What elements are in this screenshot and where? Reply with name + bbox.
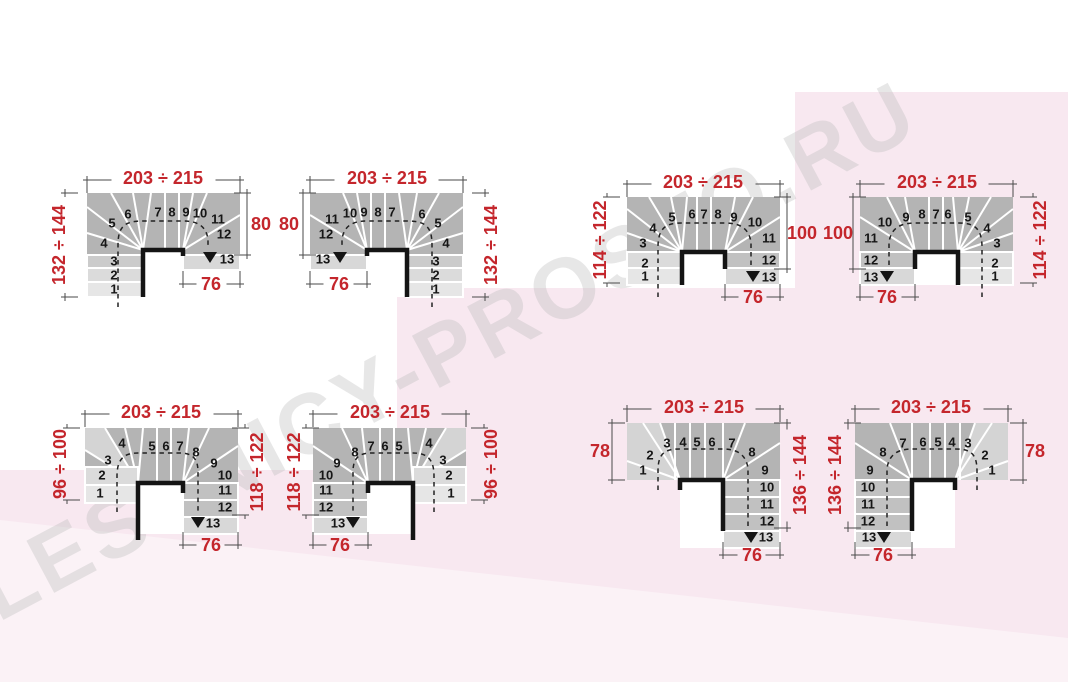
step-number: 3 (439, 454, 446, 467)
step-number: 13 (759, 531, 773, 544)
step-number: 8 (168, 206, 175, 219)
step-number: 8 (918, 208, 925, 221)
step-number: 7 (154, 206, 161, 219)
step-number: 9 (761, 464, 768, 477)
step-number: 8 (714, 208, 721, 221)
step-number: 12 (861, 515, 875, 528)
step-number: 5 (934, 436, 941, 449)
dimension-label-top: 203 ÷ 215 (347, 169, 427, 187)
dimension-label-bottom: 76 (877, 288, 897, 306)
dimension-label-right: 78 (1025, 442, 1045, 460)
step-number: 9 (730, 211, 737, 224)
step-number: 7 (899, 437, 906, 450)
step-number: 9 (333, 457, 340, 470)
dimension-label-bottom: 76 (742, 546, 762, 564)
step-number: 6 (919, 436, 926, 449)
step-number: 5 (108, 217, 115, 230)
step-number: 5 (395, 440, 402, 453)
step-number: 11 (760, 498, 774, 511)
dimension-label-bottom: 76 (201, 536, 221, 554)
step-number: 13 (316, 253, 330, 266)
dimension-label-bottom: 76 (743, 288, 763, 306)
step-number: 13 (331, 517, 345, 530)
step-number: 6 (418, 208, 425, 221)
dimension-label-right: 114 ÷ 122 (1031, 201, 1049, 280)
step-number: 10 (748, 216, 762, 229)
dimension-label-left: 80 (279, 215, 299, 233)
step-number: 2 (110, 269, 117, 282)
step-number: 3 (639, 237, 646, 250)
step-number: 3 (104, 454, 111, 467)
step-number: 7 (700, 208, 707, 221)
step-number: 6 (708, 436, 715, 449)
step-number: 11 (762, 232, 776, 245)
step-number: 10 (343, 207, 357, 220)
dimension-label-left: 78 (590, 442, 610, 460)
step-number: 12 (319, 228, 333, 241)
step-number: 2 (445, 469, 452, 482)
step-number: 6 (944, 208, 951, 221)
step-number: 4 (100, 237, 107, 250)
dimension-label-left: 96 ÷ 100 (51, 429, 69, 499)
step-number: 11 (864, 232, 878, 245)
dimension-label-left: 118 ÷ 122 (285, 433, 303, 512)
step-number: 8 (192, 446, 199, 459)
step-number: 12 (762, 254, 776, 267)
step-number: 11 (325, 213, 339, 226)
step-number: 1 (110, 283, 117, 296)
dimension-label-left: 132 ÷ 144 (50, 205, 68, 285)
step-number: 4 (948, 436, 955, 449)
dimension-label-bottom: 76 (873, 546, 893, 564)
step-number: 13 (862, 531, 876, 544)
stair-plan-diagram-6: 203 ÷ 215118 ÷ 12296 ÷ 10076123456789101… (258, 388, 543, 594)
dimension-label-left: 136 ÷ 144 (826, 435, 844, 515)
step-number: 10 (878, 216, 892, 229)
step-number: 3 (993, 237, 1000, 250)
step-number: 1 (991, 270, 998, 283)
dimension-label-top: 203 ÷ 215 (123, 169, 203, 187)
step-number: 9 (866, 464, 873, 477)
step-number: 10 (218, 469, 232, 482)
step-number: 6 (124, 208, 131, 221)
step-number: 5 (434, 217, 441, 230)
step-number: 1 (447, 487, 454, 500)
step-number: 9 (182, 206, 189, 219)
dimension-label-left: 114 ÷ 122 (591, 201, 609, 280)
step-number: 4 (983, 222, 990, 235)
step-number: 13 (762, 271, 776, 284)
step-number: 4 (425, 437, 432, 450)
step-number: 6 (162, 440, 169, 453)
step-number: 5 (693, 436, 700, 449)
step-number: 8 (748, 446, 755, 459)
step-number: 1 (988, 464, 995, 477)
dimension-label-top: 203 ÷ 215 (664, 398, 744, 416)
step-number: 10 (861, 481, 875, 494)
step-number: 6 (381, 440, 388, 453)
step-number: 1 (639, 464, 646, 477)
step-number: 9 (210, 457, 217, 470)
step-number: 6 (688, 208, 695, 221)
step-number: 1 (432, 283, 439, 296)
dimension-label-top: 203 ÷ 215 (121, 403, 201, 421)
step-number: 9 (902, 211, 909, 224)
step-number: 2 (641, 257, 648, 270)
stair-plan-diagram-8: 203 ÷ 215136 ÷ 144787612345678910111213 (800, 383, 1068, 608)
step-number: 10 (319, 469, 333, 482)
step-number: 5 (148, 440, 155, 453)
step-number: 12 (760, 515, 774, 528)
step-number: 3 (432, 255, 439, 268)
dimension-label-bottom: 76 (329, 275, 349, 293)
step-number: 13 (864, 271, 878, 284)
step-number: 2 (981, 449, 988, 462)
step-number: 11 (861, 498, 875, 511)
step-number: 7 (728, 437, 735, 450)
step-number: 1 (641, 270, 648, 283)
step-number: 12 (319, 501, 333, 514)
step-number: 2 (991, 257, 998, 270)
step-number: 11 (211, 213, 225, 226)
dimension-label-left: 100 (823, 224, 853, 242)
stair-plan-diagram-2: 203 ÷ 21580132 ÷ 1447612345678910111213 (255, 153, 540, 357)
step-number: 7 (932, 208, 939, 221)
step-number: 7 (367, 440, 374, 453)
dimension-label-right: 96 ÷ 100 (482, 429, 500, 499)
step-number: 3 (110, 255, 117, 268)
step-number: 11 (319, 484, 333, 497)
step-number: 12 (217, 228, 231, 241)
step-number: 8 (351, 446, 358, 459)
step-number: 4 (679, 436, 686, 449)
step-number: 4 (118, 437, 125, 450)
step-number: 7 (388, 206, 395, 219)
step-number: 4 (442, 237, 449, 250)
dimension-label-bottom: 76 (201, 275, 221, 293)
step-number: 9 (360, 206, 367, 219)
step-number: 8 (879, 446, 886, 459)
step-number: 10 (760, 481, 774, 494)
stair-plans-figure: LESTNICY-PROSTO.RU 203 ÷ 215132 ÷ 144807… (0, 0, 1068, 682)
step-number: 11 (218, 484, 232, 497)
dimension-label-right: 132 ÷ 144 (482, 205, 500, 285)
step-number: 13 (220, 253, 234, 266)
step-number: 13 (206, 517, 220, 530)
step-number: 1 (96, 487, 103, 500)
step-number: 7 (176, 440, 183, 453)
step-number: 12 (218, 501, 232, 514)
dimension-label-top: 203 ÷ 215 (891, 398, 971, 416)
step-number: 2 (98, 469, 105, 482)
step-number: 2 (646, 449, 653, 462)
stair-plan-diagram-4: 203 ÷ 215100114 ÷ 1227612345678910111213 (805, 157, 1068, 345)
step-number: 3 (663, 437, 670, 450)
step-number: 8 (374, 206, 381, 219)
step-number: 10 (193, 207, 207, 220)
step-number: 3 (964, 437, 971, 450)
dimension-label-bottom: 76 (330, 536, 350, 554)
step-number: 4 (649, 222, 656, 235)
step-number: 5 (668, 211, 675, 224)
dimension-label-top: 203 ÷ 215 (897, 173, 977, 191)
step-number: 2 (432, 269, 439, 282)
dimension-label-top: 203 ÷ 215 (663, 173, 743, 191)
step-number: 5 (964, 211, 971, 224)
step-number: 12 (864, 254, 878, 267)
dimension-label-top: 203 ÷ 215 (350, 403, 430, 421)
